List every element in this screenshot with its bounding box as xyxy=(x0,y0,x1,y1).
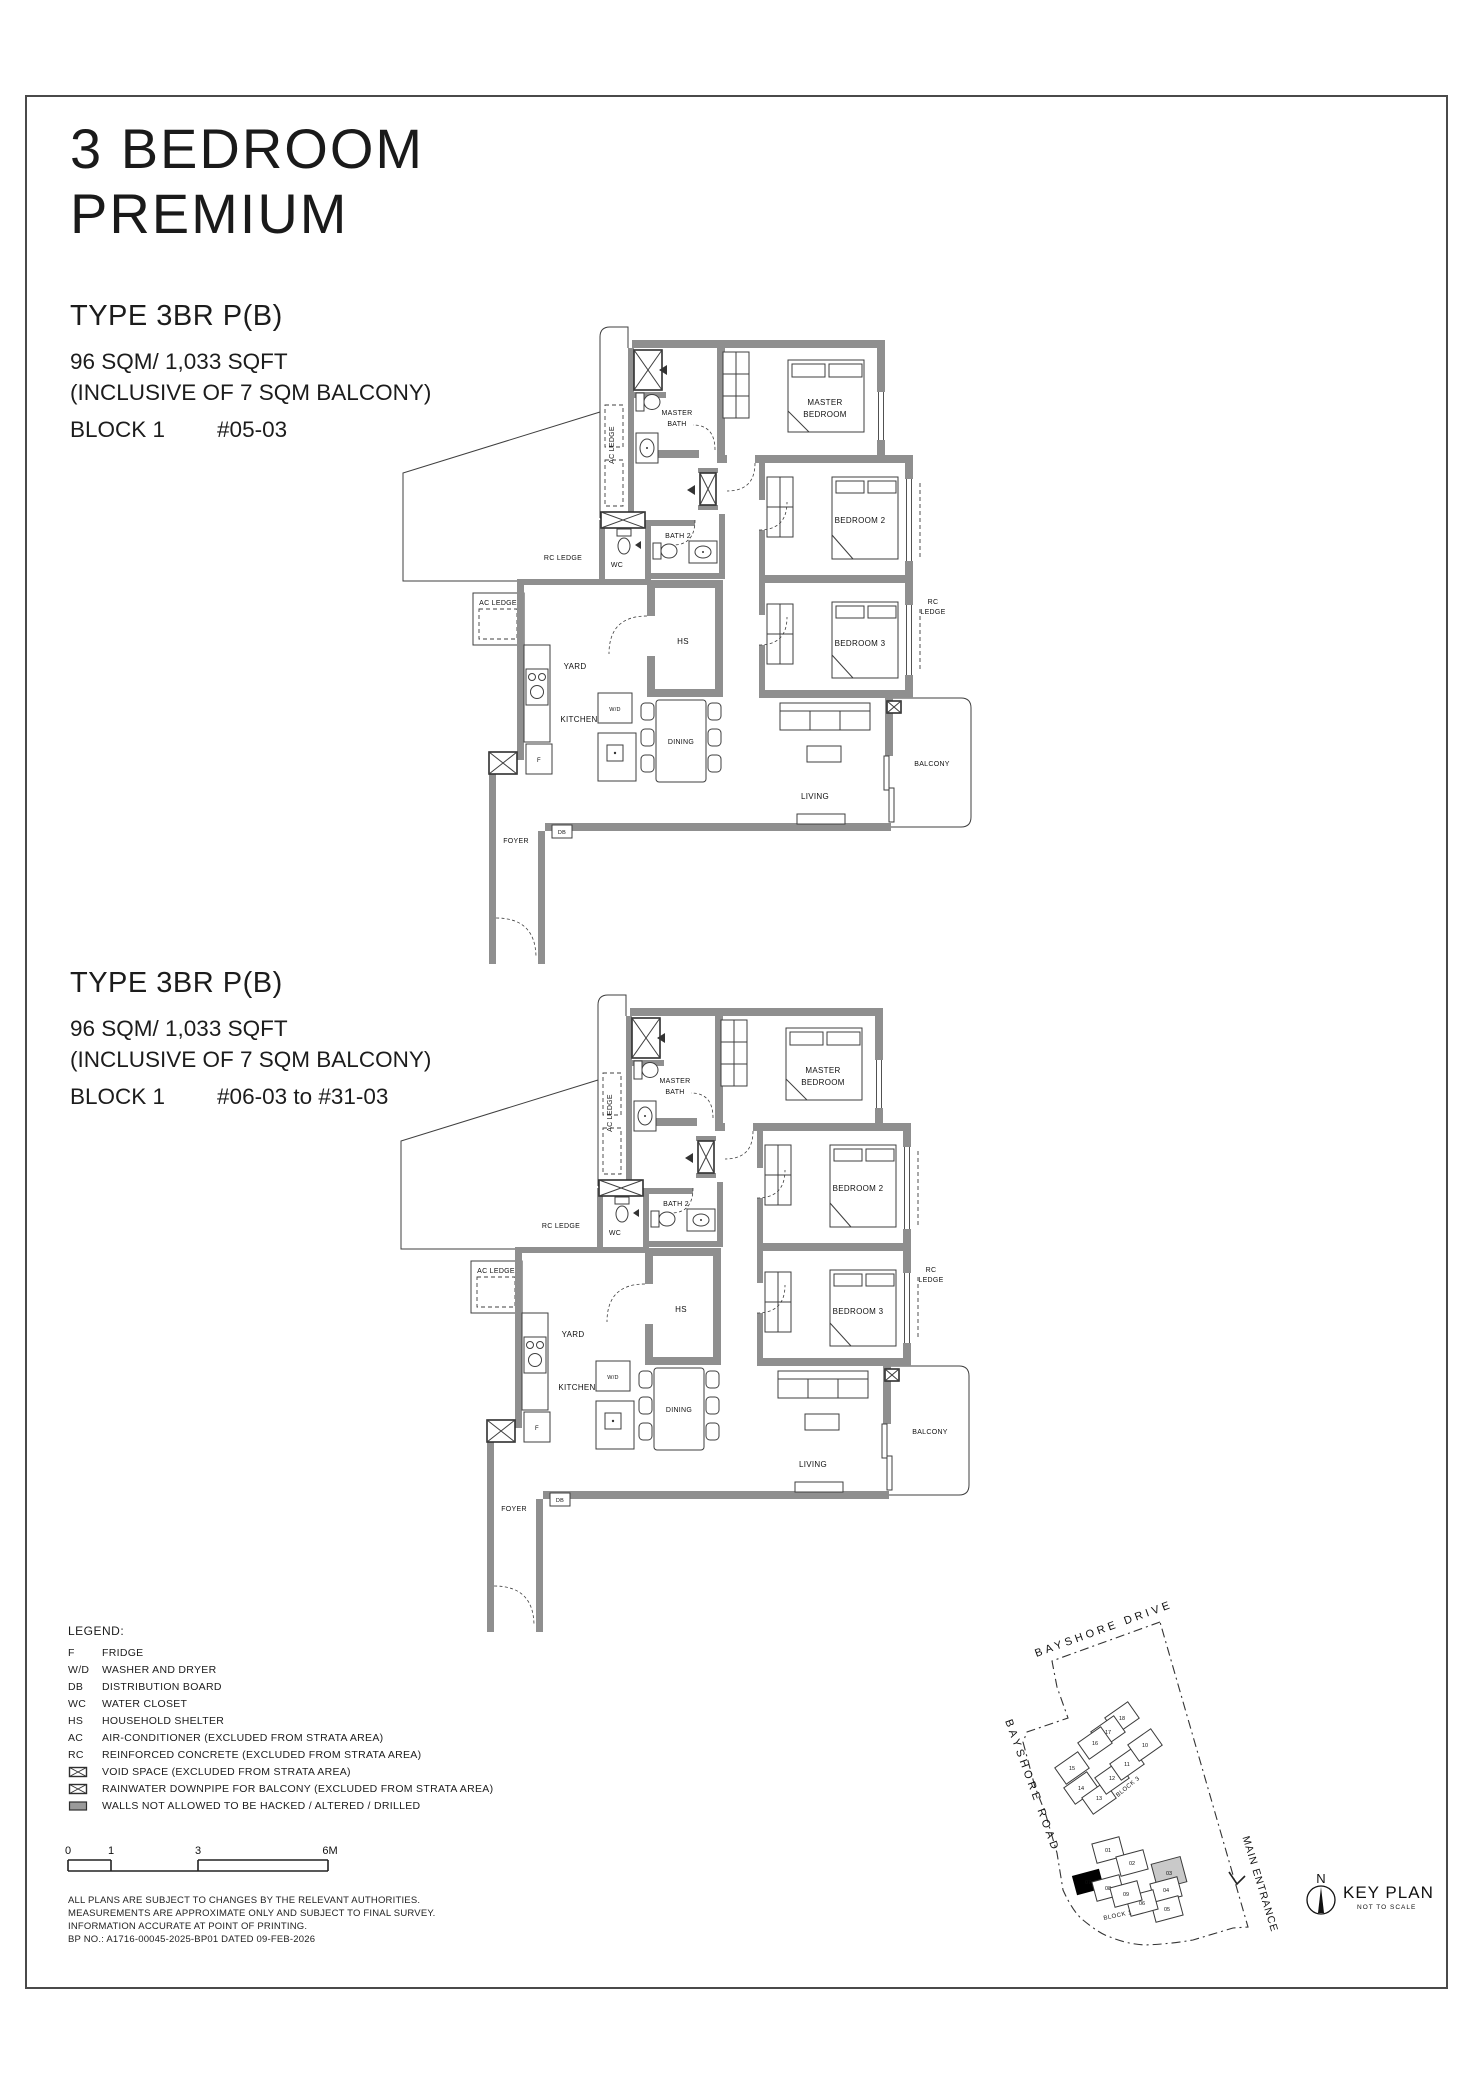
keyplan-unit-number: 09 xyxy=(1123,1892,1129,1898)
footer-note-line: BP NO.: A1716-00045-2025-BP01 DATED 09-F… xyxy=(68,1933,436,1946)
legend-key: DB xyxy=(68,1681,102,1693)
keyplan-unit-number: 06 xyxy=(1139,1901,1145,1907)
keyplan-unit-number: 03 xyxy=(1166,1871,1172,1877)
keyplan-unit-number: 15 xyxy=(1069,1766,1075,1772)
legend-row: DBDISTRIBUTION BOARD xyxy=(68,1678,588,1695)
footer-notes: ALL PLANS ARE SUBJECT TO CHANGES BY THE … xyxy=(68,1894,436,1946)
keyplan-unit-number: 07 xyxy=(1085,1880,1091,1886)
unit-block: BLOCK 1 xyxy=(70,417,165,442)
legend-label: FRIDGE xyxy=(102,1647,143,1659)
legend-label: RAINWATER DOWNPIPE FOR BALCONY (EXCLUDED… xyxy=(102,1783,493,1795)
floor-plan-drawing-2 xyxy=(393,983,1013,1633)
legend-label: WATER CLOSET xyxy=(102,1698,187,1710)
keyplan-unit-number: 05 xyxy=(1164,1907,1170,1913)
legend-row: HSHOUSEHOLD SHELTER xyxy=(68,1712,588,1729)
keyplan-unit-number: 01 xyxy=(1105,1848,1111,1854)
legend-row: RCREINFORCED CONCRETE (EXCLUDED FROM STR… xyxy=(68,1746,588,1763)
compass-north-label: N xyxy=(1316,1871,1325,1886)
floor-plan-drawing-1 xyxy=(395,315,1015,965)
unit-stack: #06-03 to #31-03 xyxy=(217,1084,388,1109)
legend-key: AC xyxy=(68,1732,102,1744)
page-title-line2: PREMIUM xyxy=(70,181,424,246)
legend-row: RAINWATER DOWNPIPE FOR BALCONY (EXCLUDED… xyxy=(68,1780,588,1797)
legend-label: REINFORCED CONCRETE (EXCLUDED FROM STRAT… xyxy=(102,1749,421,1761)
legend-row: WCWATER CLOSET xyxy=(68,1695,588,1712)
block-1-cluster: 01 02 03 04 05 06 07 08 09 BLOCK 1 xyxy=(1072,1837,1187,1923)
legend-row: WALLS NOT ALLOWED TO BE HACKED / ALTERED… xyxy=(68,1797,588,1814)
legend-key: WC xyxy=(68,1698,102,1710)
legend-row: FFRIDGE xyxy=(68,1644,588,1661)
keyplan-subtitle: NOT TO SCALE xyxy=(1357,1904,1416,1911)
brochure-page: 3 BEDROOM PREMIUM TYPE 3BR P(B) 96 SQM/ … xyxy=(0,0,1478,2086)
page-title-line1: 3 BEDROOM xyxy=(70,116,424,181)
hacked-wall-swatch-icon xyxy=(68,1800,102,1812)
page-title: 3 BEDROOM PREMIUM xyxy=(70,116,424,246)
scale-bar: 0 1 3 6M xyxy=(60,1840,360,1878)
keyplan-unit-number: 14 xyxy=(1078,1786,1084,1792)
legend-label: HOUSEHOLD SHELTER xyxy=(102,1715,224,1727)
north-compass-icon: N xyxy=(1307,1871,1335,1914)
legend-key: HS xyxy=(68,1715,102,1727)
block-1-label: BLOCK 1 xyxy=(1103,1910,1133,1922)
keyplan-unit-number: 18 xyxy=(1119,1716,1125,1722)
unit-block: BLOCK 1 xyxy=(70,1084,165,1109)
legend-key: F xyxy=(68,1647,102,1659)
legend-row: VOID SPACE (EXCLUDED FROM STRATA AREA) xyxy=(68,1763,588,1780)
block-3-cluster: 18 17 16 15 14 13 12 11 10 BLOCK 3 xyxy=(1055,1702,1162,1814)
legend-label: WASHER AND DRYER xyxy=(102,1664,217,1676)
scale-tick-label: 6M xyxy=(322,1845,337,1857)
scale-tick-label: 3 xyxy=(195,1845,201,1857)
footer-note-line: ALL PLANS ARE SUBJECT TO CHANGES BY THE … xyxy=(68,1894,436,1907)
footer-note-line: MEASUREMENTS ARE APPROXIMATE ONLY AND SU… xyxy=(68,1907,436,1920)
legend-label: WALLS NOT ALLOWED TO BE HACKED / ALTERED… xyxy=(102,1800,420,1812)
road-label-bayshore-road: BAYSHORE ROAD xyxy=(1002,1718,1061,1854)
scale-tick-label: 1 xyxy=(108,1845,114,1857)
rainwater-downpipe-box-icon xyxy=(68,1783,102,1795)
key-plan: BAYSHORE DRIVE BAYSHORE ROAD MAIN ENTRAN… xyxy=(985,1592,1455,1992)
legend: LEGEND: FFRIDGE W/DWASHER AND DRYER DBDI… xyxy=(68,1624,588,1814)
keyplan-unit-number: 11 xyxy=(1124,1762,1130,1768)
keyplan-unit-number: 02 xyxy=(1129,1861,1135,1867)
footer-note-line: INFORMATION ACCURATE AT POINT OF PRINTIN… xyxy=(68,1920,436,1933)
void-box-icon xyxy=(68,1766,102,1778)
main-entrance-label: MAIN ENTRANCE xyxy=(1240,1835,1281,1934)
main-entrance-arrow-icon xyxy=(1229,1872,1245,1884)
keyplan-unit-number: 16 xyxy=(1092,1741,1098,1747)
legend-label: AIR-CONDITIONER (EXCLUDED FROM STRATA AR… xyxy=(102,1732,383,1744)
road-label-bayshore-drive: BAYSHORE DRIVE xyxy=(1033,1599,1174,1660)
keyplan-unit-number: 04 xyxy=(1163,1888,1169,1894)
keyplan-title: KEY PLAN xyxy=(1343,1883,1434,1902)
scale-tick-label: 0 xyxy=(65,1845,71,1857)
legend-row: ACAIR-CONDITIONER (EXCLUDED FROM STRATA … xyxy=(68,1729,588,1746)
keyplan-unit-number: 12 xyxy=(1109,1776,1115,1782)
legend-title: LEGEND: xyxy=(68,1624,588,1638)
scale-bar-line xyxy=(68,1860,328,1871)
legend-row: W/DWASHER AND DRYER xyxy=(68,1661,588,1678)
legend-key: RC xyxy=(68,1749,102,1761)
unit-stack: #05-03 xyxy=(217,417,287,442)
legend-key: W/D xyxy=(68,1664,102,1676)
keyplan-unit-number: 10 xyxy=(1142,1743,1148,1749)
legend-label: DISTRIBUTION BOARD xyxy=(102,1681,222,1693)
keyplan-unit-number: 13 xyxy=(1096,1796,1102,1802)
legend-label: VOID SPACE (EXCLUDED FROM STRATA AREA) xyxy=(102,1766,351,1778)
